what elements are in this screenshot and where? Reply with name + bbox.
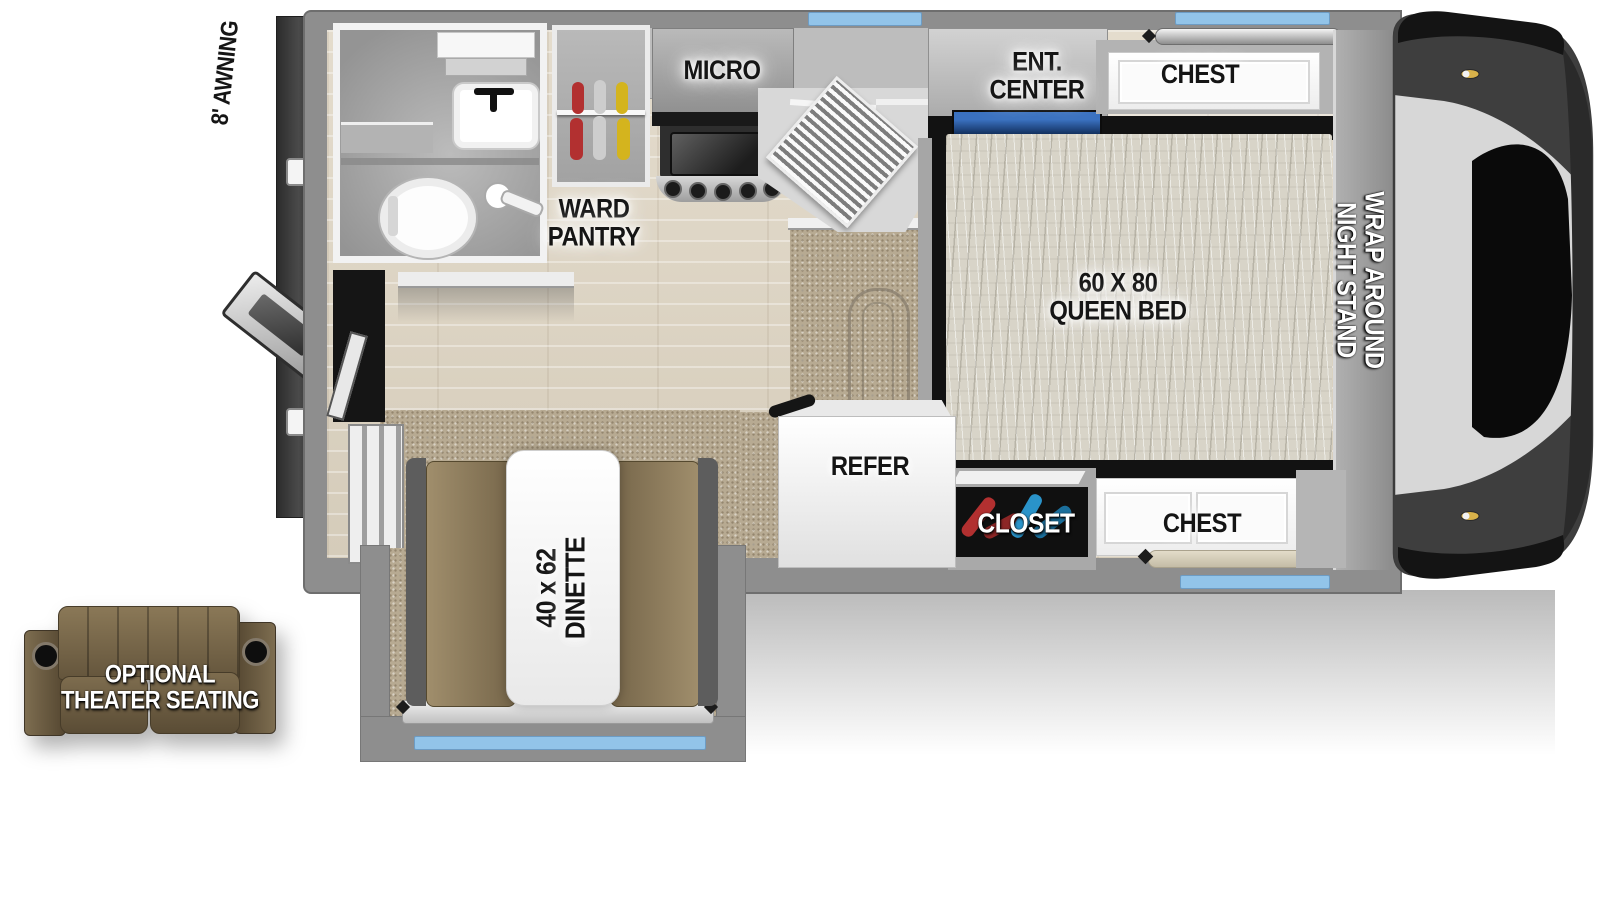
entry-steps	[348, 424, 404, 564]
label-night-stand: WRAP AROUND NIGHT STAND	[1332, 174, 1387, 385]
label-dinette: 40 x 62 DINETTE	[532, 537, 589, 639]
stove-knob-icon	[689, 182, 707, 200]
hanger-silver-icon	[593, 116, 606, 160]
dinette-bench-trim-right	[698, 458, 718, 706]
step-arch-inner	[862, 302, 894, 412]
chest-bottom-right-cap	[1296, 470, 1346, 568]
bathroom-medicine-cabinet	[437, 32, 535, 58]
hanger-red-icon	[572, 82, 584, 114]
truck-nose-cap	[1386, 3, 1600, 587]
label-refer: REFER	[831, 453, 909, 481]
ground-shadow	[745, 590, 1555, 755]
window-bottom-right	[1180, 575, 1330, 589]
bathroom-divider-wall	[341, 158, 539, 165]
hanger-yellow-icon	[617, 118, 630, 160]
label-micro: MICRO	[684, 57, 761, 85]
window-top-right	[1175, 12, 1330, 25]
dinette-bench-trim-left	[406, 458, 426, 706]
closet-shelf	[953, 471, 1086, 484]
label-queen-bed: 60 X 80 QUEEN BED	[1049, 269, 1186, 324]
floorplan-canvas: 8' AWNING MICRO WARD PANTRY ENT. CENTER …	[0, 0, 1600, 898]
stove-knob-icon	[664, 180, 682, 198]
hanger-silver-icon	[594, 80, 606, 114]
label-ward-pantry: WARD PANTRY	[548, 195, 640, 250]
cupholder-icon	[32, 642, 60, 670]
hall-counter	[398, 272, 574, 288]
dinette-bench-left	[426, 461, 516, 707]
refer-box	[778, 416, 956, 568]
label-theater-seating: OPTIONAL THEATER SEATING	[61, 663, 259, 714]
toilet-seat-hinge	[388, 196, 398, 236]
label-chest-top: CHEST	[1161, 61, 1239, 89]
stove-knob-icon	[739, 182, 757, 200]
bathroom-vent	[445, 58, 527, 76]
label-closet: CLOSET	[977, 510, 1074, 539]
window-top-left	[808, 12, 922, 26]
label-chest-bottom: CHEST	[1163, 510, 1241, 538]
nightstand-shelf-bar	[1155, 28, 1341, 45]
hanger-yellow-icon	[616, 82, 628, 114]
dinette-bench-right	[610, 461, 700, 707]
faucet-spout	[490, 92, 497, 112]
dinette-window	[414, 736, 706, 750]
hanger-red-icon	[570, 118, 583, 160]
stove-knob-icon	[714, 183, 732, 201]
label-awning: 8' AWNING	[208, 20, 243, 127]
hall-counter-shadow	[398, 288, 574, 322]
tv-icon	[952, 110, 1102, 136]
bathroom-counter-left	[341, 122, 433, 153]
label-ent-center: ENT. CENTER	[989, 48, 1084, 103]
